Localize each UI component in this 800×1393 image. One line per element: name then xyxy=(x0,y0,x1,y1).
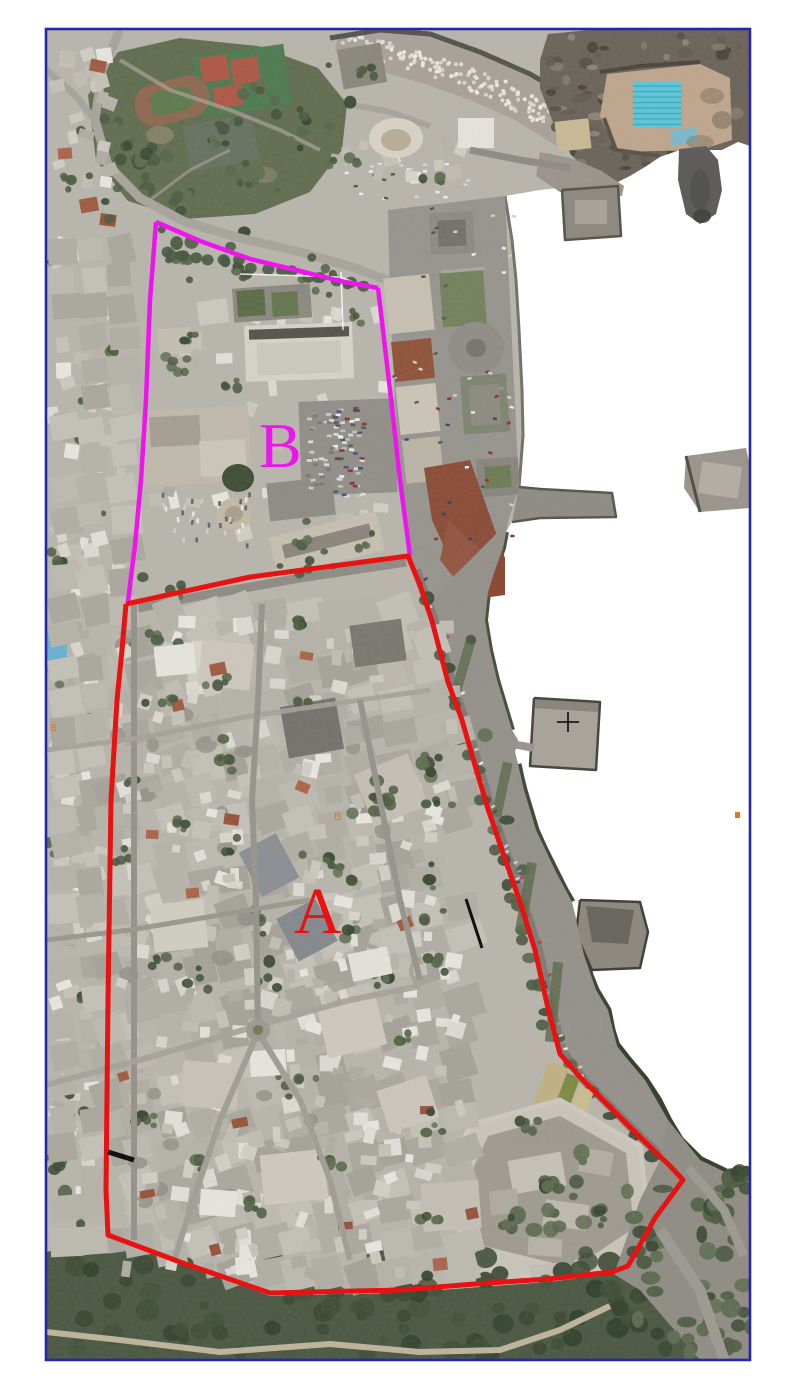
svg-text:B: B xyxy=(259,410,302,481)
svg-text:A: A xyxy=(294,875,342,948)
svg-text:B: B xyxy=(50,723,57,734)
svg-text:B: B xyxy=(334,811,341,823)
